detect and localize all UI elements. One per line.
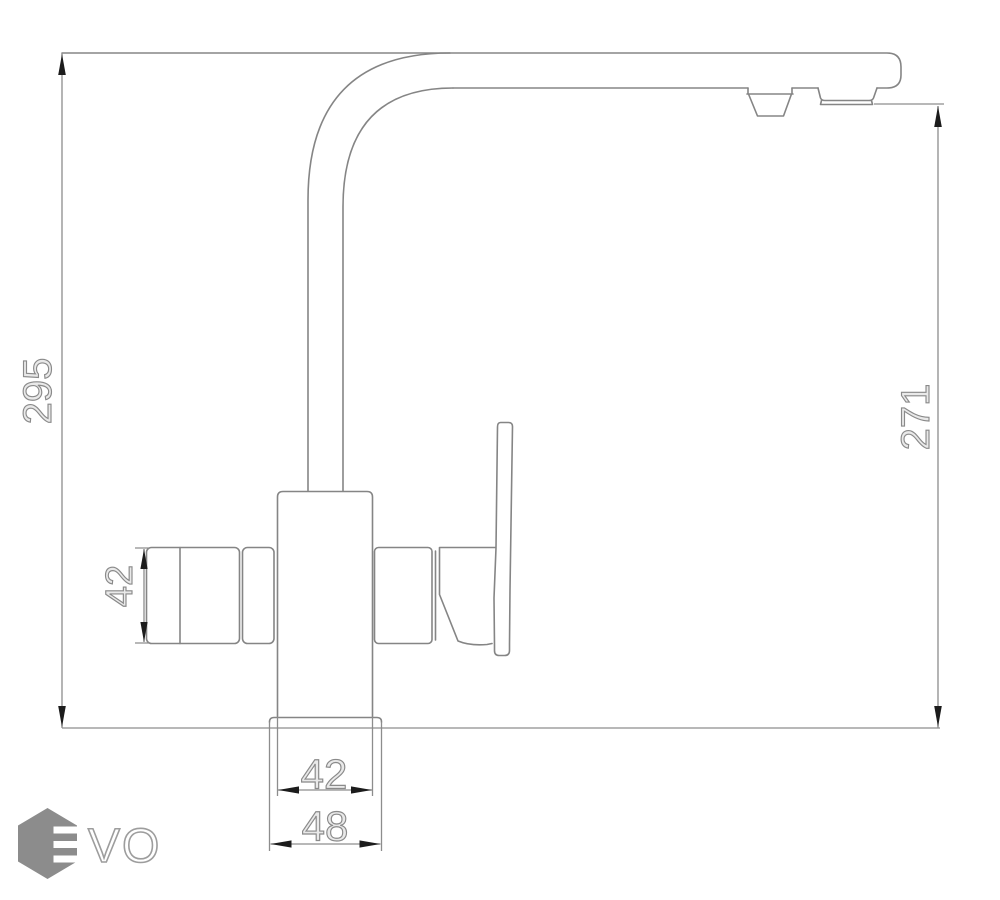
left-valve-body [147,548,240,644]
arrowhead-left [271,840,292,847]
riser-inner-curve [343,88,453,491]
evo-logo: VO [18,808,161,879]
arrowhead-down [934,706,942,727]
aerator-outlet [818,88,877,105]
logo-text: VO [88,820,161,873]
arrowhead-down [58,706,66,727]
dimension-valve-height: 42 [99,548,150,643]
arrowhead-up [58,54,66,75]
spout-top-and-right-end [62,53,901,88]
faucet-body [278,492,373,717]
arrowhead-up [934,106,942,127]
left-valve-collar [243,548,275,644]
base-flange [270,718,382,723]
drawing-canvas: 295 271 42 42 48 VO [0,0,1000,900]
dimension-body-width: 42 [278,751,372,798]
dim-label-48-base: 48 [302,803,349,850]
handle-cone [440,548,497,645]
dimension-total-height: 295 [16,53,66,728]
dim-label-271: 271 [894,384,938,451]
arrowhead-right [360,840,381,847]
e-slot-bottom [54,856,86,863]
dimension-base-width: 48 [271,803,381,850]
dim-label-42-valve: 42 [99,565,141,607]
arrowhead-left [278,786,299,793]
e-slot-top [54,827,86,834]
dim-label-42-body: 42 [301,751,348,798]
dimension-outlet-height: 271 [874,104,944,728]
handle-lever [494,423,513,656]
right-valve-body [375,548,433,644]
e-slot-middle [54,841,86,848]
faucet-technical-drawing: 295 271 42 42 48 VO [0,0,1000,900]
dim-label-295: 295 [16,358,60,425]
spray-nozzle [747,88,793,116]
arrowhead-right [351,786,372,793]
riser-outer-curve [308,53,450,491]
